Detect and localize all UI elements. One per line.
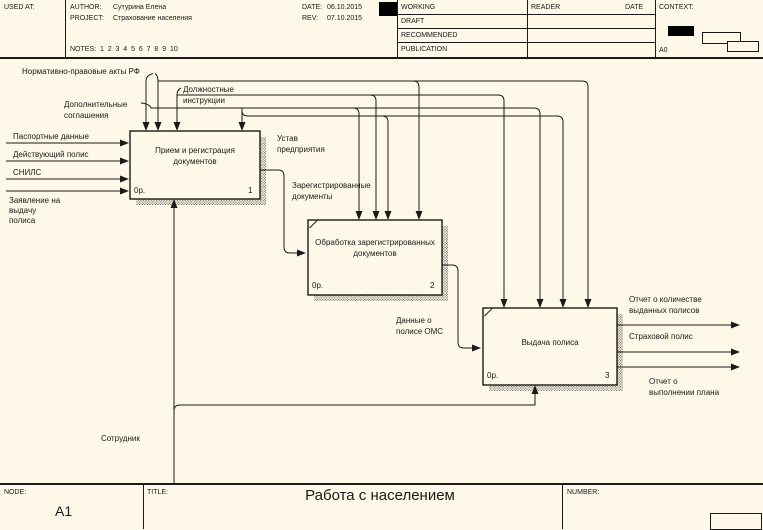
status-recommended: RECOMMENDED <box>401 31 457 40</box>
arrow-label-job-instructions: Должностные инструкции <box>183 84 234 106</box>
header-divider-1 <box>65 0 66 58</box>
date-label: DATE: <box>302 3 322 12</box>
header-highlight-box <box>379 2 397 16</box>
project-label: PROJECT: <box>70 14 104 23</box>
activity-box-2-cost: 0р. <box>312 281 323 290</box>
activity-box-3-number: 3 <box>605 371 609 380</box>
reader-col-label: READER <box>531 3 560 12</box>
status-working: WORKING <box>401 3 435 12</box>
project-value: Страхование населения <box>113 14 192 23</box>
arrow-label-insurance-policy: Страховой полис <box>629 331 693 342</box>
activity-box-2-number: 2 <box>430 281 434 290</box>
rev-label: REV: <box>302 14 318 23</box>
status-publication: PUBLICATION <box>401 45 447 54</box>
author-label: AUTHOR: <box>70 3 102 12</box>
header-row-line-1 <box>397 14 655 15</box>
status-draft: DRAFT <box>401 17 424 26</box>
arrow-label-application: Заявление на выдачу полиса <box>9 196 60 226</box>
header-row-line-3 <box>397 42 655 43</box>
header-row-line-2 <box>397 28 655 29</box>
author-value: Сутурина Елена <box>113 3 166 12</box>
footer-divider-2 <box>562 485 563 529</box>
arrow-label-employee: Сотрудник <box>101 433 140 444</box>
activity-box-3-title: Выдача полиса <box>484 337 616 348</box>
header-bottom-border <box>0 57 763 59</box>
arrow-label-additional-agreements: Дополнительные соглашения <box>64 99 127 121</box>
activity-box-1-number: 1 <box>248 186 252 195</box>
footer-corner-box <box>710 513 762 530</box>
used-at-label: USED AT: <box>4 3 35 12</box>
activity-box-3-cost: 0р. <box>487 371 498 380</box>
header-divider-2 <box>397 0 398 58</box>
footer-top-border <box>0 483 763 485</box>
date-value: 06.10.2015 <box>327 3 362 12</box>
rev-value: 07.10.2015 <box>327 14 362 23</box>
node-value: A1 <box>55 503 72 519</box>
notes-row: NOTES: 1 2 3 4 5 6 7 8 9 10 <box>70 45 178 54</box>
arrow-label-passport-data: Паспортные данные <box>13 131 89 142</box>
title-label: TITLE: <box>147 488 168 497</box>
context-label: CONTEXT: <box>659 3 694 12</box>
date-col-label: DATE <box>625 3 643 12</box>
activity-box-2-title: Обработка зарегистрированных документов <box>309 237 441 259</box>
diagram-title: Работа с населением <box>280 487 480 504</box>
context-node: A0 <box>659 46 668 55</box>
header-divider-4 <box>655 0 656 58</box>
arrow-label-company-charter: Устав предприятия <box>277 133 325 155</box>
activity-box-1-cost: 0р. <box>134 186 145 195</box>
arrow-label-normative-acts: Нормативно-правовые акты РФ <box>22 66 140 77</box>
arrow-label-oms-policy-data: Данные о полисе ОМС <box>396 315 443 337</box>
activity-box-1-title: Прием и регистрация документов <box>131 145 259 167</box>
node-label: NODE: <box>4 488 26 497</box>
arrow-label-snils: СНИЛС <box>13 167 41 178</box>
arrow-label-report-plan: Отчет о выполнении плана <box>649 376 719 398</box>
context-sketch-current-node <box>668 26 694 36</box>
context-sketch-node-3 <box>727 41 759 52</box>
header-divider-3 <box>527 0 528 58</box>
idef0-diagram-canvas[interactable] <box>0 0 763 529</box>
arrow-label-active-policy: Действующий полис <box>13 149 89 160</box>
idef0-diagram-page: { "colors": {"background": "#FDF8E7", "l… <box>0 0 763 529</box>
arrow-label-report-issued-count: Отчет о количестве выданных полисов <box>629 294 702 316</box>
arrow-label-registered-docs: Зарегистрированные документы <box>292 180 371 202</box>
footer-divider-1 <box>143 485 144 529</box>
number-label: NUMBER: <box>567 488 599 497</box>
